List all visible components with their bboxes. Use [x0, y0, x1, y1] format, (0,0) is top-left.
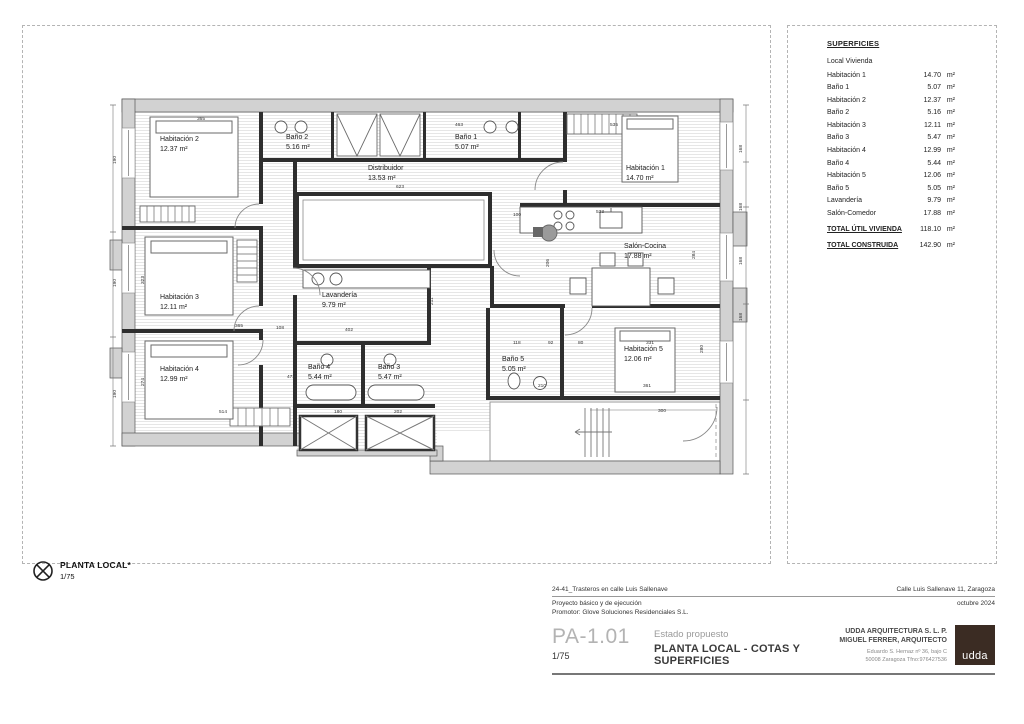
- room-label-bano-1: Baño 1: [455, 134, 477, 141]
- title-block: 24-41_Trasteros en calle Luis Sallenave …: [552, 586, 995, 675]
- dimension-label: 280: [699, 345, 705, 353]
- sheet-scale: 1/75: [552, 651, 644, 661]
- surfaces-totals: TOTAL ÚTIL VIVIENDA118.10m²TOTAL CONSTRU…: [827, 226, 955, 249]
- room-area-bano-5: 5.05 m²: [502, 366, 526, 373]
- room-label-lavanderia: Lavandería: [322, 292, 357, 299]
- room-area-habitacion-3: 12.11 m²: [160, 304, 188, 311]
- project-code: 24-41_Trasteros en calle Luis Sallenave: [552, 586, 668, 593]
- firm-address: Eduardo S. Hernaz nº 36, bajo C: [819, 649, 947, 657]
- sheet-title: PLANTA LOCAL - COTAS Y SUPERFICIES: [654, 643, 819, 667]
- dimension-label: 331: [646, 340, 654, 346]
- dimension-label: 473: [287, 374, 295, 380]
- room-area-distribuidor: 13.53 m²: [368, 175, 396, 182]
- udda-logo: udda: [955, 625, 995, 665]
- dimension-label: 180: [334, 409, 342, 415]
- stairwell-zone: [490, 402, 720, 461]
- surface-row: Baño 35.47m²: [827, 134, 955, 141]
- dimension-label: 211: [429, 297, 435, 305]
- dimension-label: 535: [610, 122, 618, 128]
- surface-row: Baño 45.44m²: [827, 160, 955, 167]
- dimension-label: 365: [197, 116, 205, 122]
- dimension-label: 118: [513, 340, 521, 346]
- light-well: [297, 194, 490, 266]
- dimension-label: 168: [738, 145, 744, 153]
- surface-row: Habitación 512.06m²: [827, 172, 955, 179]
- dimension-label: 92: [548, 340, 554, 346]
- dimension-label: 284: [691, 251, 697, 259]
- bed-habitacion-4: [145, 341, 233, 419]
- dimension-label: 533: [596, 209, 604, 215]
- surfaces-rows: Habitación 114.70m²Baño 15.07m²Habitació…: [827, 72, 955, 218]
- surface-row: Baño 55.05m²: [827, 185, 955, 192]
- dimension-label: 168: [738, 257, 744, 265]
- surface-row: Habitación 212.37m²: [827, 97, 955, 104]
- dimension-label: 190: [112, 156, 118, 164]
- dimension-label: 80: [578, 340, 584, 346]
- dimension-label: 216: [485, 373, 491, 381]
- surface-row: Baño 15.07m²: [827, 84, 955, 91]
- drawing-sheet: Habitación 212.37 m²Baño 25.16 m²Baño 15…: [0, 0, 1024, 724]
- sheet-code: PA-1.01: [552, 625, 644, 649]
- dimension-label: 623: [396, 184, 404, 190]
- dimension-label: 100: [513, 212, 521, 218]
- surface-total-row: TOTAL ÚTIL VIVIENDA118.10m²: [827, 226, 955, 233]
- surface-row: Salón-Comedor17.88m²: [827, 210, 955, 217]
- surfaces-title: SUPERFICIES: [827, 40, 955, 48]
- room-area-bano-1: 5.07 m²: [455, 144, 479, 151]
- room-label-bano-5: Baño 5: [502, 356, 524, 363]
- firm-name: UDDA ARQUITECTURA S. L. P.: [819, 627, 947, 636]
- surface-total-row: TOTAL CONSTRUIDA142.90m²: [827, 242, 955, 249]
- room-area-habitacion-1: 14.70 m²: [626, 175, 654, 182]
- surface-row: Habitación 412.99m²: [827, 147, 955, 154]
- bed-habitacion-1: [622, 116, 678, 182]
- surface-row: Lavandería9.79m²: [827, 197, 955, 204]
- dimension-label: 274: [140, 378, 146, 386]
- surfaces-subtitle: Local Vivienda: [827, 58, 955, 65]
- project-promoter: Promotor: Glove Soluciones Residenciales…: [552, 609, 689, 616]
- room-area-habitacion-4: 12.99 m²: [160, 376, 188, 383]
- surface-row: Baño 25.16m²: [827, 109, 955, 116]
- plan-marker-scale: 1/75: [60, 572, 131, 581]
- room-label-habitacion-2: Habitación 2: [160, 136, 199, 143]
- dimension-label: 463: [455, 122, 463, 128]
- laundry-appliances: [303, 270, 430, 288]
- room-area-bano-4: 5.44 m²: [308, 374, 332, 381]
- dimension-label: 210: [538, 383, 546, 389]
- dimension-label: 202: [394, 409, 402, 415]
- room-label-salon-cocina: Salón-Cocina: [624, 243, 666, 250]
- room-area-bano-3: 5.47 m²: [378, 374, 402, 381]
- skylight-shafts: [300, 416, 434, 450]
- project-date: octubre 2024: [957, 600, 995, 607]
- room-label-bano-2: Baño 2: [286, 134, 308, 141]
- room-area-habitacion-2: 12.37 m²: [160, 146, 188, 153]
- plan-marker-label: PLANTA LOCAL*: [60, 560, 131, 570]
- sheet-status: Estado propuesto: [654, 629, 819, 640]
- plan-marker-icon: [32, 560, 54, 582]
- dimension-label: 190: [112, 390, 118, 398]
- room-area-lavanderia: 9.79 m²: [322, 302, 346, 309]
- room-label-habitacion-1: Habitación 1: [626, 165, 665, 172]
- dimension-label: 168: [738, 313, 744, 321]
- dimension-label: 402: [345, 327, 353, 333]
- firm-architect: MIGUEL FERRER, ARQUITECTO: [819, 636, 947, 645]
- surface-row: Habitación 114.70m²: [827, 72, 955, 79]
- dimension-label: 108: [276, 325, 284, 331]
- dimension-label: 514: [219, 409, 227, 415]
- room-area-salon-cocina: 17.88 m²: [624, 253, 652, 260]
- room-label-habitacion-4: Habitación 4: [160, 366, 199, 373]
- room-label-bano-3: Baño 3: [378, 364, 400, 371]
- surfaces-panel: SUPERFICIES Local Vivienda Habitación 11…: [827, 40, 955, 249]
- plan-marker: PLANTA LOCAL* 1/75: [32, 560, 131, 582]
- project-address: Calle Luis Sallenave 11, Zaragoza: [896, 586, 995, 593]
- room-area-bano-2: 5.16 m²: [286, 144, 310, 151]
- surface-row: Habitación 312.11m²: [827, 122, 955, 129]
- room-label-habitacion-3: Habitación 3: [160, 294, 199, 301]
- room-label-distribuidor: Distribuidor: [368, 165, 404, 172]
- dimension-label: 361: [643, 383, 651, 389]
- dimension-label: 206: [545, 259, 551, 267]
- udda-logo-text: udda: [962, 650, 988, 662]
- dimension-label: 365: [235, 323, 243, 329]
- bed-habitacion-3: [145, 237, 233, 315]
- room-label-bano-4: Baño 4: [308, 364, 330, 371]
- room-area-habitacion-5: 12.06 m²: [624, 356, 652, 363]
- firm-city-phone: 50008 Zaragoza Tfno:976427536: [819, 657, 947, 665]
- room-label-habitacion-5: Habitación 5: [624, 346, 663, 353]
- bed-habitacion-2: [150, 117, 238, 197]
- dimension-label: 300: [658, 408, 666, 414]
- dimension-label: 190: [112, 279, 118, 287]
- project-phase: Proyecto básico y de ejecución: [552, 600, 642, 607]
- dimension-label: 323: [140, 276, 146, 284]
- dimension-label: 168: [738, 203, 744, 211]
